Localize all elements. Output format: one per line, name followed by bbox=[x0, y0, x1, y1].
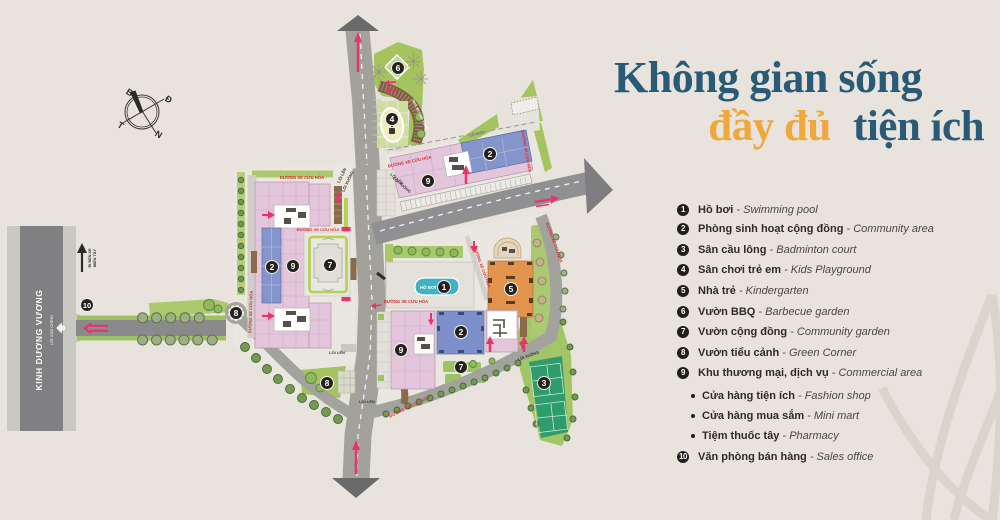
svg-text:1: 1 bbox=[442, 282, 447, 292]
svg-text:Đ: Đ bbox=[163, 93, 174, 105]
svg-text:7: 7 bbox=[328, 260, 333, 270]
svg-text:8: 8 bbox=[234, 308, 239, 318]
svg-text:10: 10 bbox=[83, 301, 91, 310]
svg-text:5: 5 bbox=[509, 284, 514, 294]
svg-text:9: 9 bbox=[291, 261, 296, 271]
svg-text:T: T bbox=[116, 120, 126, 132]
svg-text:6: 6 bbox=[396, 63, 401, 73]
svg-text:ĐƯỜNG XE CỨU HỎA: ĐƯỜNG XE CỨU HỎA bbox=[297, 227, 339, 232]
svg-text:MIỀN TÂY: MIỀN TÂY bbox=[92, 248, 97, 267]
svg-text:2: 2 bbox=[488, 149, 493, 159]
svg-text:3: 3 bbox=[542, 378, 547, 388]
svg-text:2: 2 bbox=[270, 262, 275, 272]
svg-text:9: 9 bbox=[426, 176, 431, 186]
svg-text:9: 9 bbox=[399, 345, 404, 355]
svg-text:LỐI LÊN: LỐI LÊN bbox=[359, 399, 375, 404]
svg-text:HỒ BƠI: HỒ BƠI bbox=[420, 284, 436, 290]
svg-text:LỐI VÀO CHÍNH: LỐI VÀO CHÍNH bbox=[49, 315, 54, 345]
svg-text:KINH DƯƠNG VƯƠNG: KINH DƯƠNG VƯƠNG bbox=[34, 289, 44, 390]
svg-text:ĐƯỜNG XE CỨU HỎA: ĐƯỜNG XE CỨU HỎA bbox=[384, 299, 428, 304]
svg-text:8: 8 bbox=[325, 378, 330, 388]
svg-text:ĐI BẾN XE: ĐI BẾN XE bbox=[87, 248, 92, 267]
svg-text:4: 4 bbox=[390, 114, 395, 124]
svg-text:LỐI LÊN: LỐI LÊN bbox=[329, 350, 345, 355]
svg-text:2: 2 bbox=[459, 327, 464, 337]
svg-text:ĐƯỜNG XE CỨU HỎA: ĐƯỜNG XE CỨU HỎA bbox=[280, 175, 324, 180]
svg-text:7: 7 bbox=[459, 362, 464, 372]
